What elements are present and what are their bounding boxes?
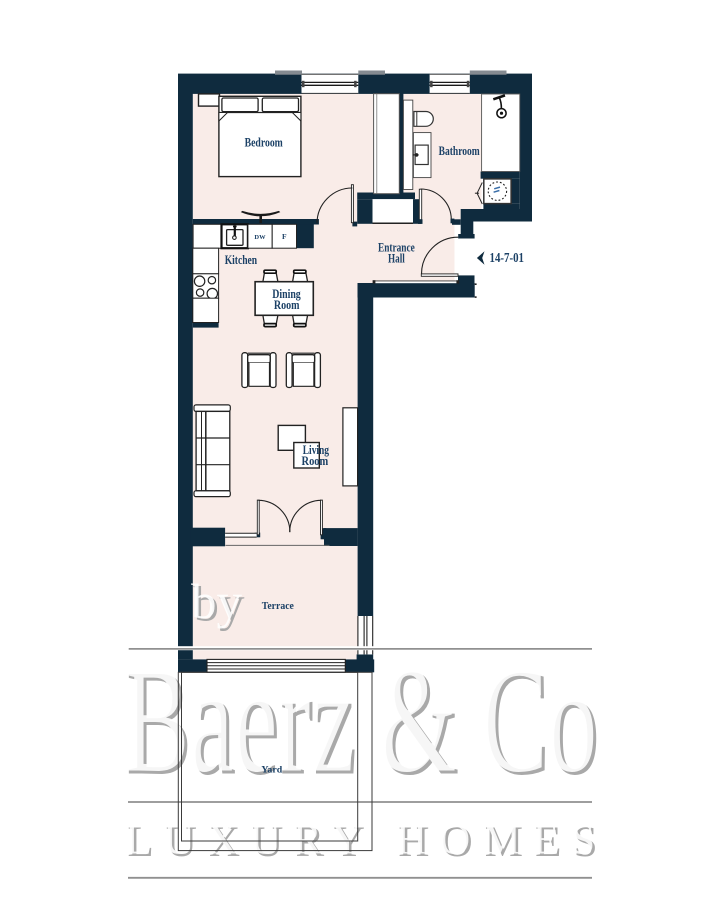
svg-text:Bedroom: Bedroom — [245, 136, 284, 150]
svg-text:F: F — [282, 232, 287, 241]
svg-text:Terrace: Terrace — [262, 601, 294, 612]
svg-text:Bathroom: Bathroom — [439, 144, 480, 158]
svg-text:14-7-01: 14-7-01 — [490, 250, 525, 265]
svg-text:Kitchen: Kitchen — [225, 253, 257, 267]
svg-text:Hall: Hall — [388, 252, 405, 266]
svg-text:DW: DW — [254, 234, 266, 241]
svg-text:Room: Room — [302, 454, 329, 468]
svg-text:Baerz & Co: Baerz & Co — [123, 636, 597, 804]
svg-text:Yard: Yard — [261, 766, 283, 776]
svg-text:by: by — [191, 573, 242, 629]
svg-text:Room: Room — [274, 298, 300, 312]
